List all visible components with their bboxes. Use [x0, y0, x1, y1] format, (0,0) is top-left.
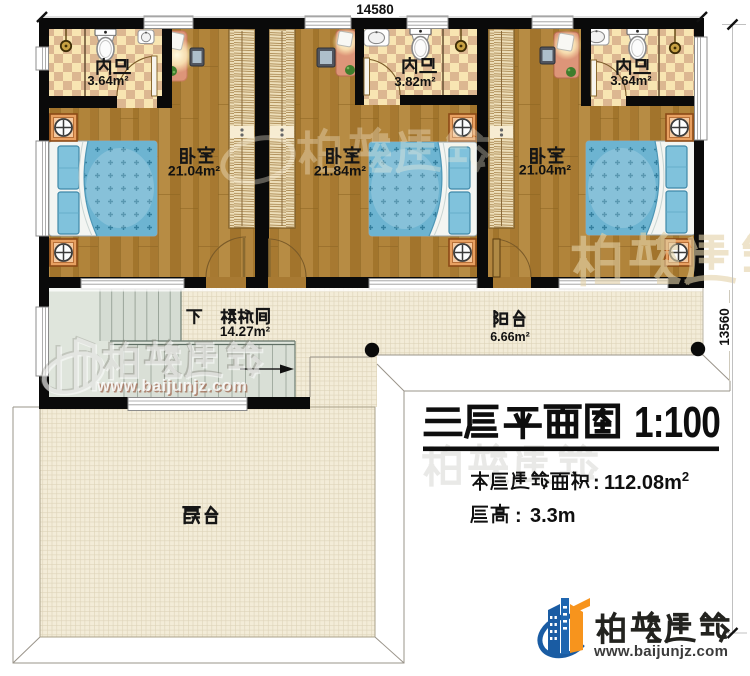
- svg-text::: :: [593, 472, 600, 494]
- svg-text:3.64m²: 3.64m²: [610, 73, 652, 88]
- svg-text:14.27m²: 14.27m²: [220, 324, 271, 339]
- svg-text:3.82m²: 3.82m²: [394, 74, 436, 89]
- svg-text:3.64m²: 3.64m²: [87, 73, 129, 88]
- svg-text:21.04m²: 21.04m²: [519, 162, 571, 178]
- svg-text:www.baijunjz.com: www.baijunjz.com: [593, 643, 728, 660]
- svg-text:14580: 14580: [356, 2, 394, 17]
- svg-text::: :: [515, 505, 522, 527]
- svg-text:13560: 13560: [717, 308, 732, 346]
- svg-text:6.66m²: 6.66m²: [490, 330, 530, 344]
- svg-text:21.04m²: 21.04m²: [168, 163, 220, 179]
- svg-text:www.baijunjz.com: www.baijunjz.com: [96, 377, 247, 395]
- svg-text:21.84m²: 21.84m²: [314, 163, 366, 179]
- svg-text:3.3m: 3.3m: [530, 505, 576, 527]
- svg-text:112.08m2: 112.08m2: [604, 469, 689, 494]
- svg-text:1:100: 1:100: [634, 398, 720, 447]
